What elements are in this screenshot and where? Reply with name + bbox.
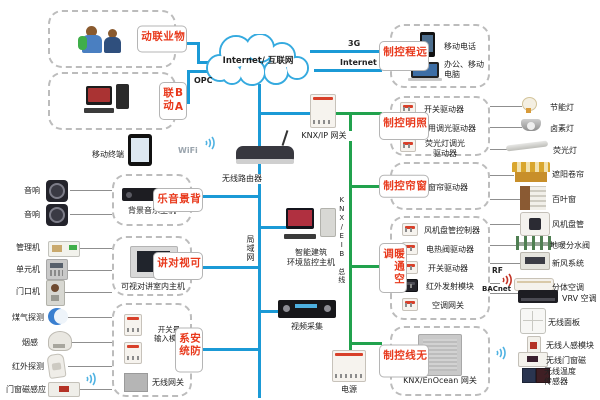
link-internet — [314, 69, 382, 72]
speaker-label-2: 音响 — [24, 210, 40, 220]
background-music-pill: 背景音乐 — [153, 188, 203, 212]
speaker-label-1: 音响 — [24, 186, 40, 196]
lan-label: 局域网 — [245, 234, 255, 263]
tablet-icon — [128, 134, 152, 166]
remote-control-pill: 远程控制 — [379, 41, 429, 71]
remote-control-box: 移动电话 办公、移动 电脑 远程控制 — [390, 24, 490, 88]
cloud-label: Internet/ 互联网 — [210, 56, 306, 67]
unit-machine-icon — [46, 259, 68, 280]
3g-label: 3G — [348, 39, 360, 49]
bacnet-label: BACnet — [482, 285, 511, 294]
link-ba-cloud-v — [187, 72, 190, 104]
wire-fancoil — [490, 224, 520, 225]
wire-blinds — [490, 199, 520, 200]
laptop-label: 办公、移动 电脑 — [444, 60, 484, 80]
fluorescent-driver-label: 荧光灯调光 驱动器 — [422, 139, 468, 159]
security-wireless-gateway-icon — [124, 373, 148, 392]
wireless-pir-label: 无线人感模块 — [546, 341, 594, 351]
unit-label: 单元机 — [16, 265, 40, 275]
smoke-label: 烟感 — [22, 338, 38, 348]
door-machine-icon — [46, 280, 65, 306]
ir-emitter-label: 红外发射模块 — [426, 282, 474, 292]
switch-driver-label: 开关驱动器 — [424, 105, 464, 115]
ir-label: 红外探测 — [12, 362, 44, 372]
hvac-box: 风机盘管控制器 电热阀驱动器 开关驱动器 红外发射模块 空调网关 暖通空调 — [390, 216, 490, 320]
fresh-air-label: 新风系统 — [552, 259, 584, 269]
fluorescent-lamp-label: 荧光灯 — [553, 146, 577, 156]
wire-ir — [68, 366, 112, 367]
gas-detector-icon — [48, 308, 66, 325]
ac-gateway-label: 空调网关 — [432, 301, 464, 311]
blinds-label: 百叶窗 — [552, 195, 576, 205]
hvac-pill: 暖通空调 — [379, 243, 407, 293]
lighting-control-pill: 照明控制 — [379, 112, 429, 140]
door-label: 门口机 — [16, 287, 40, 297]
mgr-machine-icon — [48, 241, 80, 257]
ac-gateway-icon — [402, 298, 418, 311]
wireless-control-box: KNX/EnOcean 网关 无线控制 — [390, 326, 490, 396]
video-capture-label: 视频采集 — [286, 322, 328, 332]
wire-manifold — [490, 245, 516, 246]
wire-speaker1 — [70, 190, 112, 191]
hvac-switch-driver-label: 开关驱动器 — [428, 264, 468, 274]
branch-intercom — [198, 266, 260, 269]
valve-driver-label: 电热阀驱动器 — [426, 245, 474, 255]
lighting-control-box: 开关驱动器 通用调光驱动器 荧光灯调光 驱动器 照明控制 — [390, 96, 490, 156]
fancoil-controller-label: 风机盘管控制器 — [424, 226, 480, 236]
manifold-icon — [516, 236, 554, 252]
fresh-air-icon — [520, 252, 550, 270]
vrv-ac-label: VRV 空调 — [562, 294, 597, 304]
knx-ip-gateway-icon — [310, 94, 336, 128]
monitor-host-icon — [286, 208, 338, 246]
video-capture-icon — [278, 300, 336, 318]
magnet-label: 门窗磁感应 — [6, 385, 46, 395]
power-supply-icon — [332, 350, 366, 382]
fluorescent-lamp-icon — [506, 140, 548, 151]
curtain-control-box: 窗帘驱动器 窗帘控制 — [390, 162, 490, 210]
branch-music — [198, 195, 260, 198]
wireless-temp-label: 无线温度 传感器 — [544, 367, 576, 387]
fan-coil-label: 风机盘管 — [552, 220, 584, 230]
awning-icon — [512, 162, 550, 184]
video-intercom-box: 可视对讲室内主机 可视对讲 — [112, 236, 192, 296]
awning-label: 遮阳卷帘 — [552, 170, 584, 180]
security-box: 开关量 输入模块 无线网关 安防系统 — [112, 303, 192, 397]
wireless-router-label: 无线路由器 — [222, 174, 262, 184]
speaker-icon-2 — [46, 204, 68, 226]
mobile-phone-label: 移动电话 — [444, 42, 476, 52]
knx-ip-gateway-label: KNX/IP 网关 — [296, 131, 352, 141]
knx-bus-label: KNX/EIB 总线 — [337, 196, 346, 284]
people-icon — [82, 22, 128, 58]
wire-cfl — [490, 106, 522, 107]
door-magnet-icon — [48, 382, 80, 397]
vrv-ac-icon — [518, 290, 558, 303]
property-linkage-box: 物业联动 — [48, 10, 176, 68]
branch-knxip — [258, 112, 312, 115]
internet-label: Internet — [340, 58, 377, 68]
wire-mgr — [78, 248, 112, 249]
manifold-label: 地暖分水阀 — [550, 241, 590, 251]
input-module-icon-1 — [124, 314, 142, 336]
wire-smoke — [72, 342, 112, 343]
knx-branch-curtain — [349, 185, 382, 188]
property-linkage-pill: 物业联动 — [137, 26, 187, 53]
wireless-magnet-icon — [518, 352, 548, 367]
wire-door — [64, 292, 112, 293]
input-module-icon-2 — [124, 342, 142, 364]
background-music-box: 背景音乐主机 背景音乐 — [112, 174, 192, 226]
knx-system-diagram: Internet/ 互联网 3G Internet OPC WiFi 局域网 K… — [0, 0, 600, 400]
fluorescent-driver-icon — [400, 139, 416, 152]
ba-linkage-box: BA联动 — [48, 72, 176, 130]
branch-security — [198, 348, 260, 351]
cfl-lamp-label: 节能灯 — [550, 103, 574, 113]
wire-gas — [68, 317, 112, 318]
blinds-icon — [520, 186, 546, 210]
enocean-gateway-label: KNX/EnOcean 网关 — [394, 376, 486, 386]
wire-split-ac — [490, 283, 500, 284]
ir-detector-icon — [46, 353, 66, 379]
link-3g — [310, 50, 382, 53]
wire-halogen — [490, 127, 522, 128]
wire-awning — [490, 175, 514, 176]
power-supply-label: 电源 — [336, 385, 362, 395]
wire-freshair — [490, 263, 520, 264]
halogen-lamp-label: 卤素灯 — [550, 124, 574, 134]
opc-label: OPC — [194, 76, 213, 86]
ba-linkage-pill: BA联动 — [159, 82, 187, 120]
gas-label: 煤气探测 — [12, 313, 44, 323]
mgr-label: 管理机 — [16, 243, 40, 253]
knx-branch-wireless — [349, 342, 382, 345]
monitor-host-label: 智能建筑 环境监控主机 — [278, 248, 344, 268]
smoke-detector-icon — [48, 331, 72, 351]
cfl-lamp-icon — [522, 97, 536, 113]
wireless-router-icon — [236, 140, 296, 170]
mobile-terminal-label: 移动终端 — [92, 150, 124, 160]
fan-coil-icon — [520, 212, 550, 236]
wireless-devices-signal-icon — [494, 344, 508, 366]
curtain-driver-label: 窗帘驱动器 — [428, 183, 468, 193]
security-wireless-gateway-label: 无线网关 — [152, 378, 184, 388]
intercom-host-label: 可视对讲室内主机 — [116, 282, 190, 292]
knx-branch-hvac — [349, 265, 382, 268]
speaker-icon-1 — [46, 180, 68, 202]
curtain-control-pill: 窗帘控制 — [379, 175, 429, 198]
wireless-panel-icon — [520, 308, 546, 334]
knx-backbone — [349, 112, 352, 352]
wifi-label: WiFi — [178, 146, 198, 156]
wire-speaker2 — [70, 214, 112, 215]
wireless-magnet-label: 无线门窗磁 — [546, 356, 586, 366]
wire-unit — [68, 270, 112, 271]
internet-cloud: Internet/ 互联网 — [202, 34, 314, 88]
wireless-panel-label: 无线面板 — [548, 318, 580, 328]
halogen-lamp-icon — [521, 119, 541, 133]
wifi-signal-icon — [203, 134, 217, 156]
ba-computer-icon — [86, 84, 136, 120]
security-wifi-icon — [84, 370, 98, 392]
video-intercom-pill: 可视对讲 — [153, 252, 203, 280]
wireless-control-pill: 无线控制 — [379, 345, 429, 378]
security-pill: 安防系统 — [175, 328, 203, 373]
fancoil-controller-icon — [402, 223, 418, 236]
knx-branch-lighting — [336, 112, 382, 115]
